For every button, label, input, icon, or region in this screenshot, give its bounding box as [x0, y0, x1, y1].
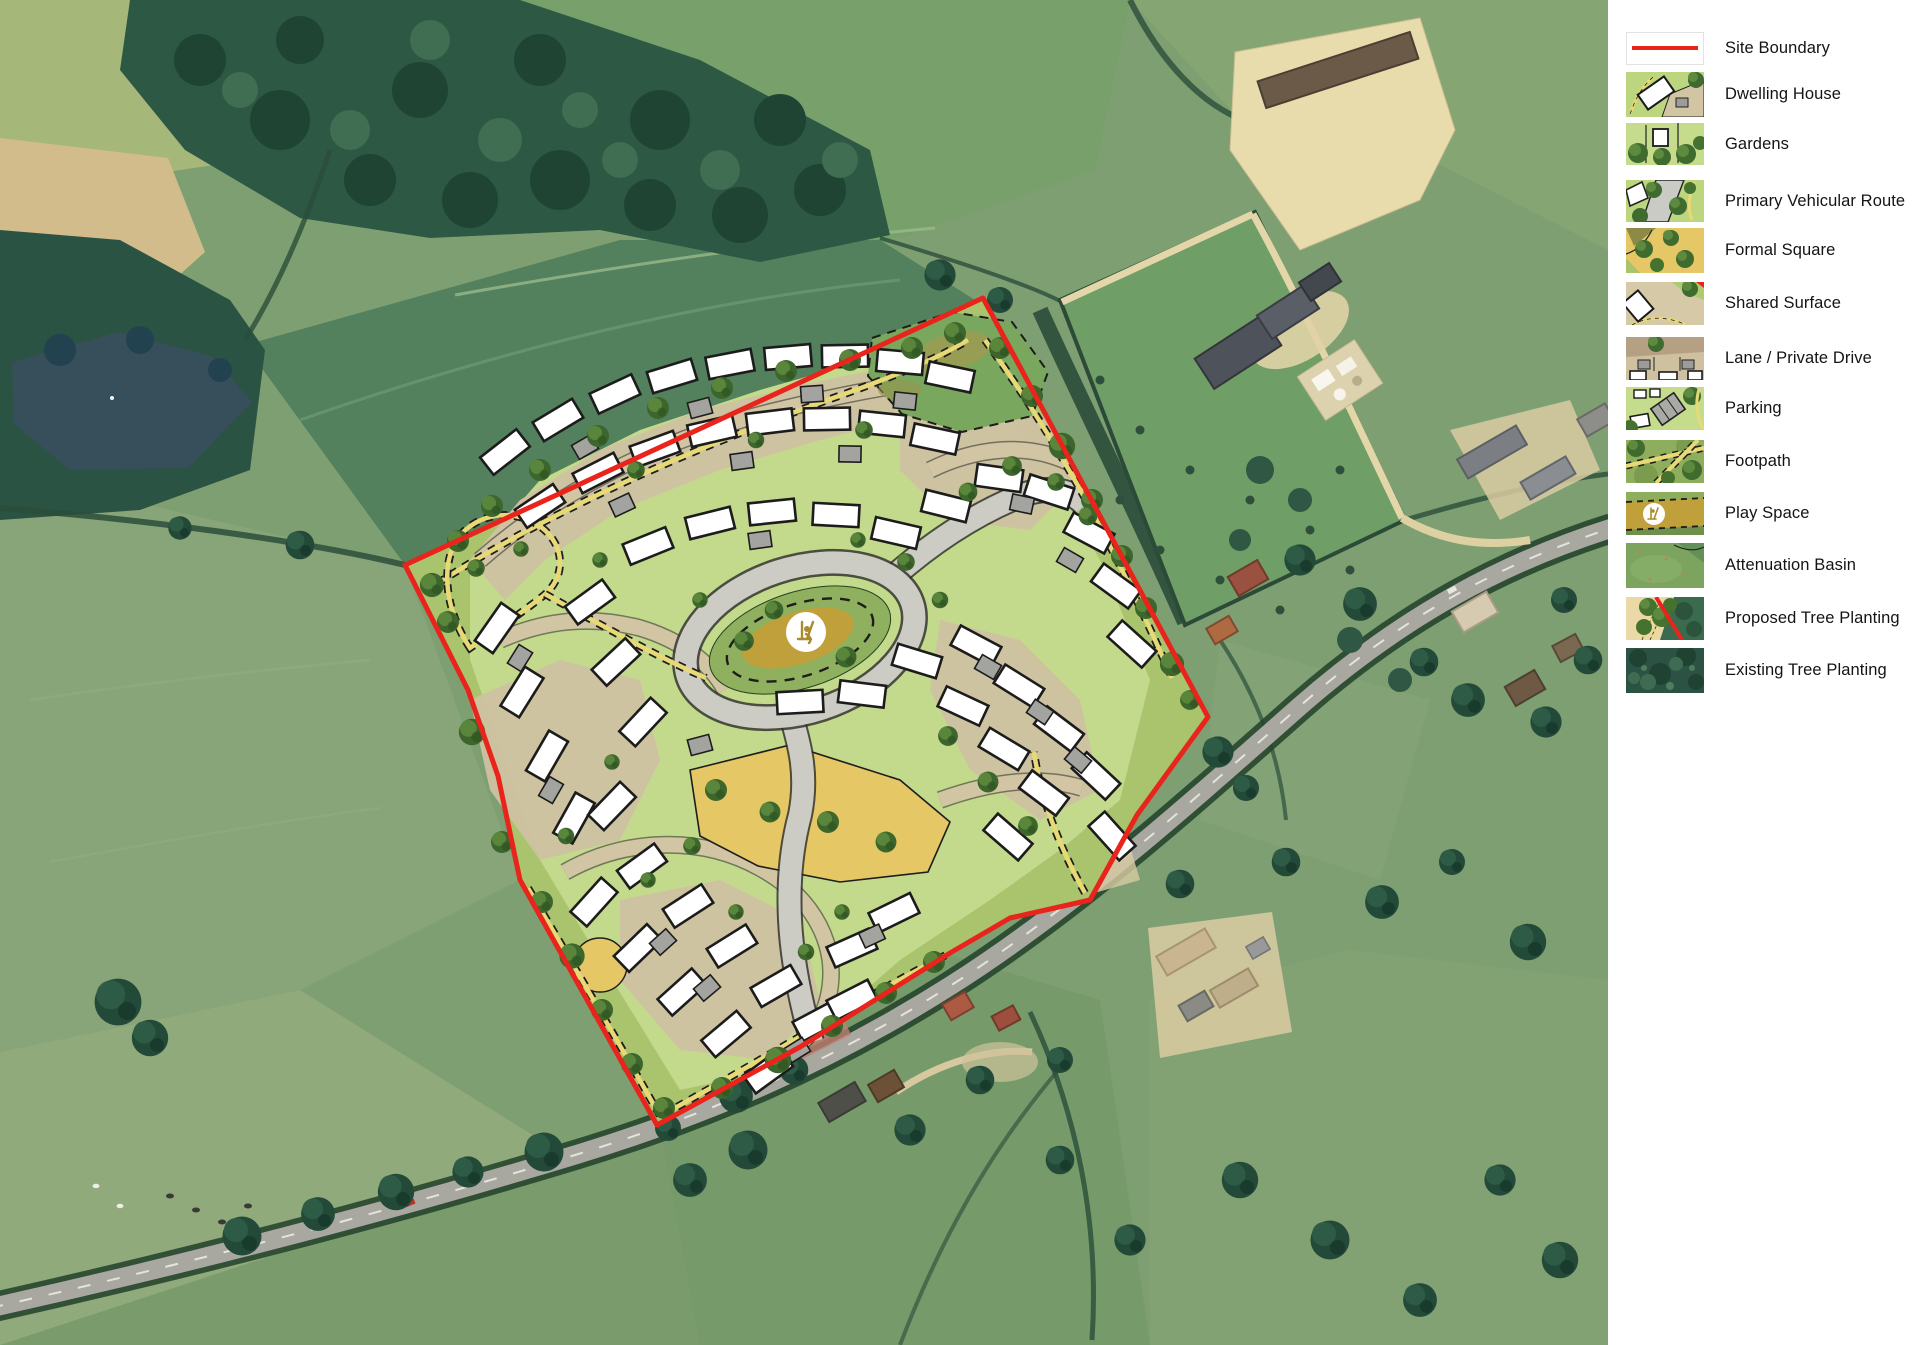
dwelling-house-swatch: [1626, 72, 1704, 117]
formal-square-swatch: [1626, 228, 1704, 273]
legend-label: Proposed Tree Planting: [1725, 609, 1900, 628]
parking-swatch: [1626, 387, 1704, 430]
legend-label: Site Boundary: [1725, 39, 1830, 58]
legend-item-parking: Parking: [1626, 387, 1782, 430]
legend-label: Footpath: [1725, 452, 1791, 471]
legend-item-proposed-tree-planting: Proposed Tree Planting: [1626, 597, 1900, 640]
map-legend: Site Boundary Dwelling House Gardens Pri…: [1608, 0, 1920, 1345]
primary-vehicular-route-swatch: [1626, 180, 1704, 222]
legend-item-footpath: Footpath: [1626, 440, 1791, 483]
legend-item-shared-surface: Shared Surface: [1626, 282, 1841, 325]
footpath-swatch: [1626, 440, 1704, 483]
legend-item-lane-private-drive: Lane / Private Drive: [1626, 337, 1872, 380]
legend-item-gardens: Gardens: [1626, 123, 1789, 165]
site-plan-page: Site Boundary Dwelling House Gardens Pri…: [0, 0, 1920, 1345]
legend-item-play-space: Play Space: [1626, 492, 1809, 535]
legend-label: Play Space: [1725, 504, 1809, 523]
site-boundary-swatch: [1626, 32, 1704, 65]
legend-item-site-boundary: Site Boundary: [1626, 32, 1830, 65]
existing-tree-planting-swatch: [1626, 648, 1704, 693]
aerial-masterplan-map: [0, 0, 1608, 1345]
legend-label: Primary Vehicular Route: [1725, 192, 1905, 211]
legend-label: Attenuation Basin: [1725, 556, 1856, 575]
play-space-icon: [786, 612, 826, 652]
legend-label: Parking: [1725, 399, 1782, 418]
play-space-swatch: [1626, 492, 1704, 535]
attenuation-basin-swatch: [1626, 543, 1704, 588]
legend-item-dwelling-house: Dwelling House: [1626, 72, 1841, 117]
shared-surface-swatch: [1626, 282, 1704, 325]
legend-label: Existing Tree Planting: [1725, 661, 1887, 680]
legend-label: Shared Surface: [1725, 294, 1841, 313]
legend-label: Dwelling House: [1725, 85, 1841, 104]
legend-item-primary-vehicular-route: Primary Vehicular Route: [1626, 180, 1905, 222]
proposed-tree-planting-swatch: [1626, 597, 1704, 640]
gardens-swatch: [1626, 123, 1704, 165]
map-area: [0, 0, 1608, 1345]
legend-item-existing-tree-planting: Existing Tree Planting: [1626, 648, 1887, 693]
legend-label: Gardens: [1725, 135, 1789, 154]
legend-label: Formal Square: [1725, 241, 1835, 260]
legend-item-attenuation-basin: Attenuation Basin: [1626, 543, 1856, 588]
lane-private-drive-swatch: [1626, 337, 1704, 380]
legend-item-formal-square: Formal Square: [1626, 228, 1835, 273]
legend-label: Lane / Private Drive: [1725, 349, 1872, 368]
